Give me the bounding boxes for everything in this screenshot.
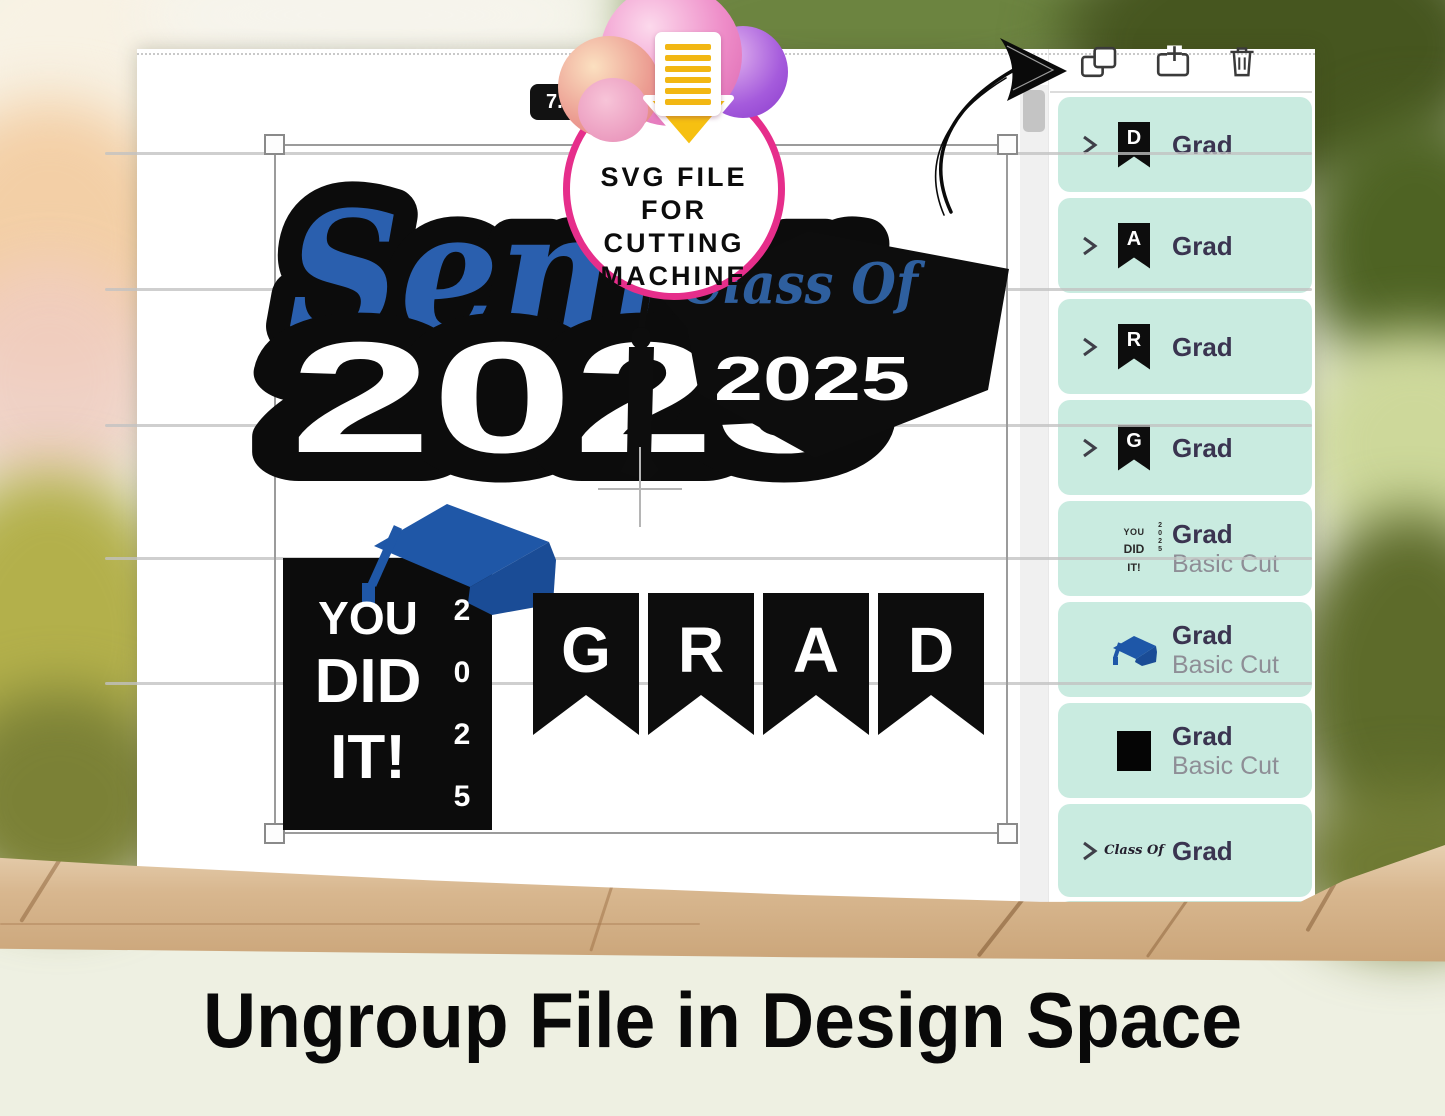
banner-letter: A bbox=[793, 614, 839, 686]
layer-label: Grad bbox=[1172, 433, 1233, 463]
layer-item-class-of[interactable]: Class Of Grad bbox=[1058, 804, 1312, 897]
layer-sublabel: Basic Cut bbox=[1172, 650, 1279, 680]
pennant-thumb-icon: G bbox=[1118, 425, 1150, 471]
layer-label: Grad bbox=[1172, 231, 1233, 261]
layer-item-grad-d[interactable]: D Grad bbox=[1058, 97, 1312, 192]
pennant-thumb-icon: A bbox=[1118, 223, 1150, 269]
badge-line-3: MACHINE bbox=[570, 260, 778, 293]
layer-item-grad-r[interactable]: R Grad bbox=[1058, 299, 1312, 394]
pennant-thumb-icon: D bbox=[1118, 122, 1150, 168]
grad-banner-design[interactable]: G R A D bbox=[533, 593, 984, 735]
grad-cap-thumb-icon bbox=[1111, 631, 1157, 669]
caption-text: Ungroup File in Design Space bbox=[203, 975, 1242, 1066]
chevron-right-icon[interactable] bbox=[1078, 234, 1100, 258]
ungroup-icon[interactable] bbox=[1078, 46, 1120, 78]
it-text: IT! bbox=[330, 723, 406, 792]
chevron-right-icon[interactable] bbox=[1078, 335, 1100, 359]
cap-year-text: 2025 bbox=[714, 345, 910, 414]
add-template-icon[interactable] bbox=[1153, 44, 1193, 78]
layer-label: Grad bbox=[1172, 620, 1279, 650]
banner-letter: D bbox=[908, 614, 954, 686]
chevron-right-icon[interactable] bbox=[1078, 839, 1100, 863]
banner-letter: R bbox=[678, 614, 724, 686]
download-cloud-graphic bbox=[560, 0, 788, 168]
layer-label: Grad bbox=[1172, 519, 1279, 549]
square-thumb-icon bbox=[1117, 731, 1151, 771]
you-did-it-design[interactable]: YOU DID IT! 2 0 2 5 bbox=[283, 504, 556, 830]
you-did-it-thumb-icon: YOU DID IT! 2025 bbox=[1110, 522, 1158, 576]
layer-item-black-square[interactable]: Grad Basic Cut bbox=[1058, 703, 1312, 798]
layer-label: Grad bbox=[1172, 836, 1233, 866]
svg-text:5: 5 bbox=[454, 780, 471, 813]
you-text: YOU bbox=[318, 592, 418, 644]
svg-text:2: 2 bbox=[454, 594, 471, 627]
class-of-thumb-icon: Class Of bbox=[1104, 843, 1164, 858]
did-text: DID bbox=[315, 647, 422, 716]
toolbar-separator bbox=[1050, 91, 1312, 93]
layer-item-you-did-it[interactable]: YOU DID IT! 2025 Grad Basic Cut bbox=[1058, 501, 1312, 596]
caption-bar: Ungroup File in Design Space bbox=[0, 975, 1445, 1066]
hand-drawn-arrow bbox=[903, 26, 1083, 226]
layer-sublabel: Basic Cut bbox=[1172, 549, 1279, 579]
trash-icon[interactable] bbox=[1227, 45, 1257, 78]
layer-item-grad-g[interactable]: G Grad bbox=[1058, 400, 1312, 495]
layer-label: Grad bbox=[1172, 332, 1233, 362]
svg-text:0: 0 bbox=[454, 656, 471, 689]
svg-text:2: 2 bbox=[454, 718, 471, 751]
chevron-right-icon[interactable] bbox=[1078, 436, 1100, 460]
layer-sublabel: Basic Cut bbox=[1172, 751, 1279, 781]
pennant-thumb-icon: R bbox=[1118, 324, 1150, 370]
badge-line-2: FOR CUTTING bbox=[570, 194, 778, 260]
layer-label: Grad bbox=[1172, 130, 1233, 160]
layer-item-grad-a[interactable]: A Grad bbox=[1058, 198, 1312, 293]
layer-label: Grad bbox=[1172, 721, 1279, 751]
document-icon bbox=[655, 32, 721, 116]
banner-letter: G bbox=[561, 614, 611, 686]
